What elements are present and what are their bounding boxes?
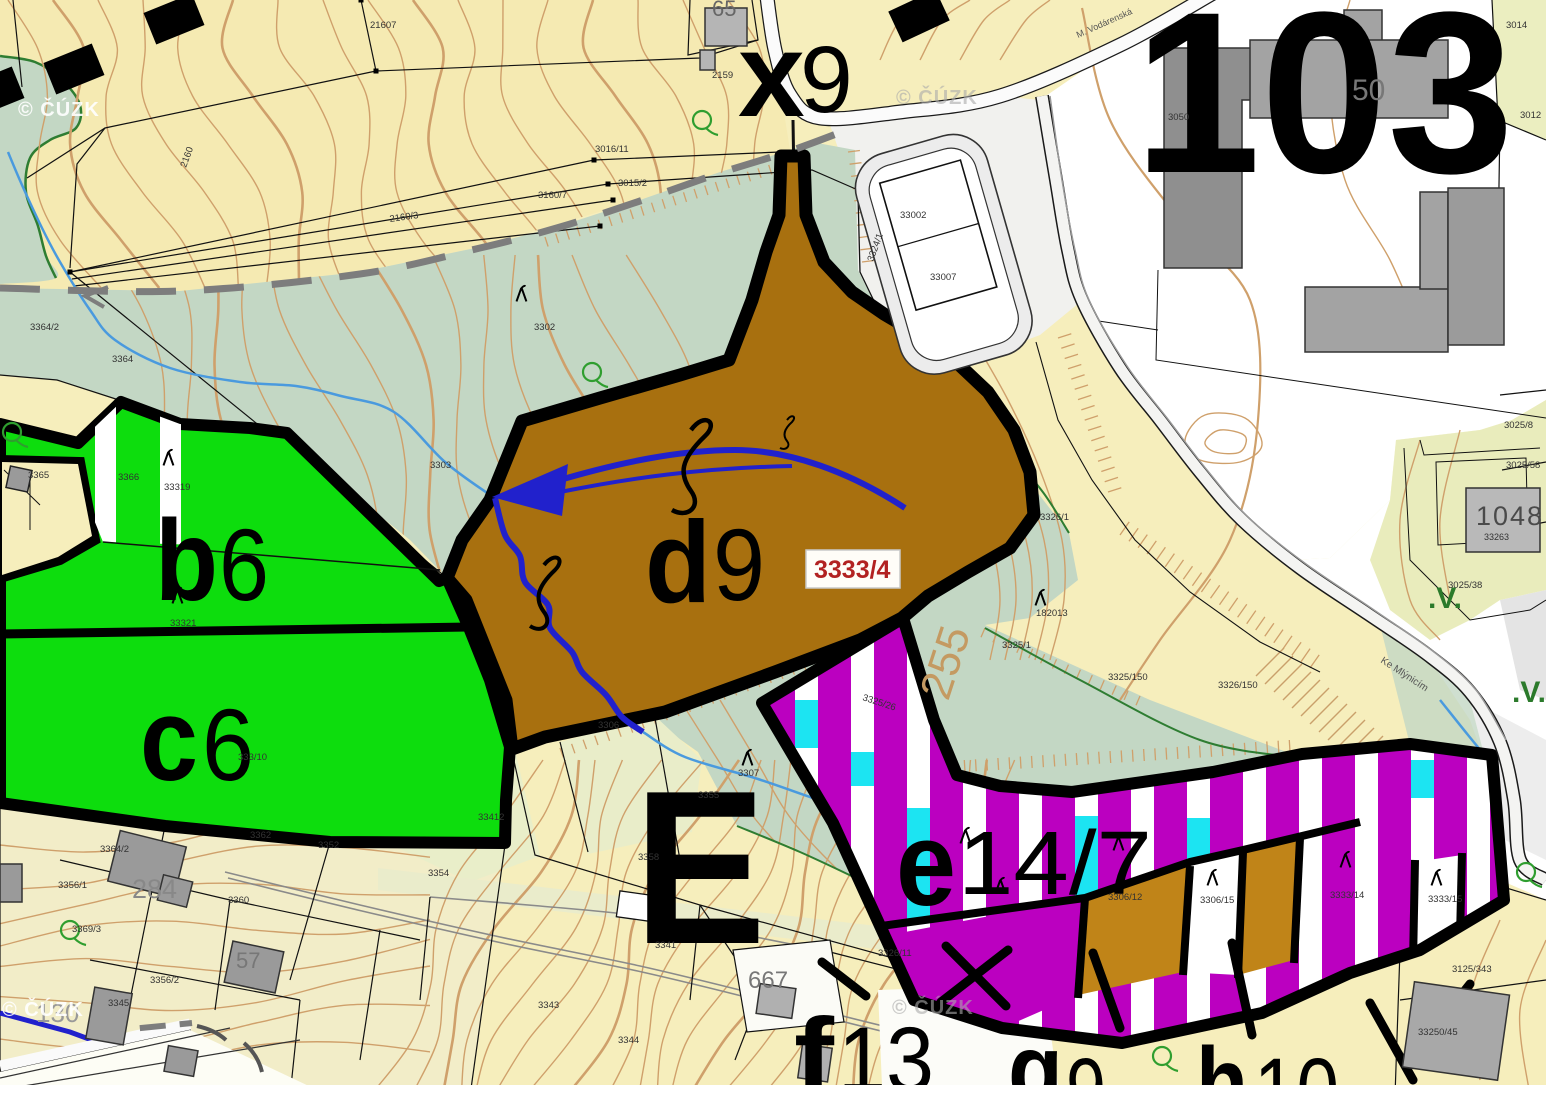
svg-text:333/10: 333/10 — [238, 752, 267, 763]
svg-text:3325/150: 3325/150 — [1108, 672, 1148, 683]
svg-text:3012: 3012 — [1520, 110, 1541, 121]
svg-text:3354: 3354 — [428, 868, 449, 879]
svg-text:33321: 33321 — [170, 618, 196, 629]
svg-text:33002: 33002 — [900, 210, 926, 221]
svg-text:© ČÚZK: © ČÚZK — [18, 97, 100, 121]
svg-text:c: c — [140, 674, 198, 806]
svg-text:103: 103 — [1134, 0, 1514, 221]
svg-text:50: 50 — [1352, 74, 1385, 107]
svg-text:.V.: .V. — [1512, 676, 1546, 709]
svg-text:3333/14: 3333/14 — [1330, 890, 1364, 901]
svg-text:3014: 3014 — [1506, 20, 1527, 31]
svg-text:3015/2: 3015/2 — [618, 178, 647, 189]
svg-text:3364/2: 3364/2 — [100, 844, 129, 855]
svg-text:6: 6 — [219, 508, 269, 622]
svg-text:33263: 33263 — [1484, 532, 1509, 542]
svg-text:3352: 3352 — [318, 840, 339, 851]
svg-text:3326/1: 3326/1 — [1040, 512, 1069, 523]
svg-text:33250/45: 33250/45 — [1418, 1027, 1458, 1038]
svg-text:3345: 3345 — [108, 998, 129, 1009]
svg-text:3306: 3306 — [598, 720, 619, 731]
svg-text:33007: 33007 — [930, 272, 956, 283]
svg-text:3355: 3355 — [698, 790, 719, 801]
svg-text:3025/58: 3025/58 — [1506, 460, 1540, 471]
svg-text:3366: 3366 — [118, 472, 139, 483]
svg-text:3333/15: 3333/15 — [1428, 894, 1462, 905]
svg-text:3306/12: 3306/12 — [1108, 892, 1142, 903]
svg-text:284: 284 — [132, 874, 177, 904]
svg-text:3303: 3303 — [430, 460, 451, 471]
svg-text:3344: 3344 — [618, 1035, 639, 1046]
svg-text:3326/11: 3326/11 — [878, 948, 912, 959]
svg-text:3025/38: 3025/38 — [1448, 580, 1482, 591]
svg-text:3050: 3050 — [1168, 112, 1189, 123]
svg-text:3341: 3341 — [655, 940, 676, 951]
svg-text:65: 65 — [712, 0, 736, 21]
svg-text:3160/7: 3160/7 — [538, 190, 567, 201]
svg-text:57: 57 — [236, 948, 260, 973]
svg-text:9: 9 — [800, 27, 853, 133]
svg-text:667: 667 — [748, 967, 788, 994]
svg-text:f: f — [794, 997, 835, 1096]
svg-text:g: g — [1008, 1014, 1063, 1096]
svg-text:d: d — [645, 497, 711, 627]
svg-text:3364: 3364 — [112, 354, 133, 365]
svg-text:b: b — [155, 497, 218, 625]
svg-text:3360: 3360 — [228, 895, 249, 906]
svg-text:9: 9 — [713, 508, 765, 622]
svg-text:182013: 182013 — [1036, 608, 1068, 619]
svg-text:3302: 3302 — [534, 322, 555, 333]
svg-text:E: E — [634, 746, 766, 990]
svg-text:3016/11: 3016/11 — [595, 144, 629, 155]
svg-text:x: x — [738, 8, 805, 142]
svg-text:e: e — [896, 797, 956, 931]
svg-text:3356/1: 3356/1 — [58, 880, 87, 891]
svg-text:3358: 3358 — [638, 852, 659, 863]
svg-text:© ČÚZK: © ČÚZK — [2, 997, 84, 1021]
svg-text:3369/3: 3369/3 — [72, 924, 101, 935]
svg-text:© ČÚZK: © ČÚZK — [896, 85, 978, 109]
svg-text:3364/2: 3364/2 — [30, 322, 59, 333]
svg-text:3365: 3365 — [28, 470, 49, 481]
svg-text:© ČÚZK: © ČÚZK — [892, 995, 974, 1019]
svg-text:3356/2: 3356/2 — [150, 975, 179, 986]
svg-text:13: 13 — [838, 1009, 934, 1096]
svg-text:3307: 3307 — [738, 768, 759, 779]
svg-text:1048: 1048 — [1476, 501, 1544, 531]
svg-text:2159: 2159 — [712, 70, 733, 81]
svg-text:3306/15: 3306/15 — [1200, 895, 1234, 906]
svg-text:6: 6 — [202, 688, 254, 802]
svg-text:33319: 33319 — [164, 482, 190, 493]
svg-text:3362: 3362 — [250, 830, 271, 841]
svg-text:21607: 21607 — [370, 20, 396, 31]
svg-text:3025/8: 3025/8 — [1504, 420, 1533, 431]
svg-text:33412: 33412 — [478, 812, 504, 823]
svg-text:3326/150: 3326/150 — [1218, 680, 1258, 691]
svg-text:3333/4: 3333/4 — [814, 556, 891, 584]
svg-text:3325/1: 3325/1 — [1002, 640, 1031, 651]
svg-text:3343: 3343 — [538, 1000, 559, 1011]
svg-text:3125/343: 3125/343 — [1452, 964, 1492, 975]
